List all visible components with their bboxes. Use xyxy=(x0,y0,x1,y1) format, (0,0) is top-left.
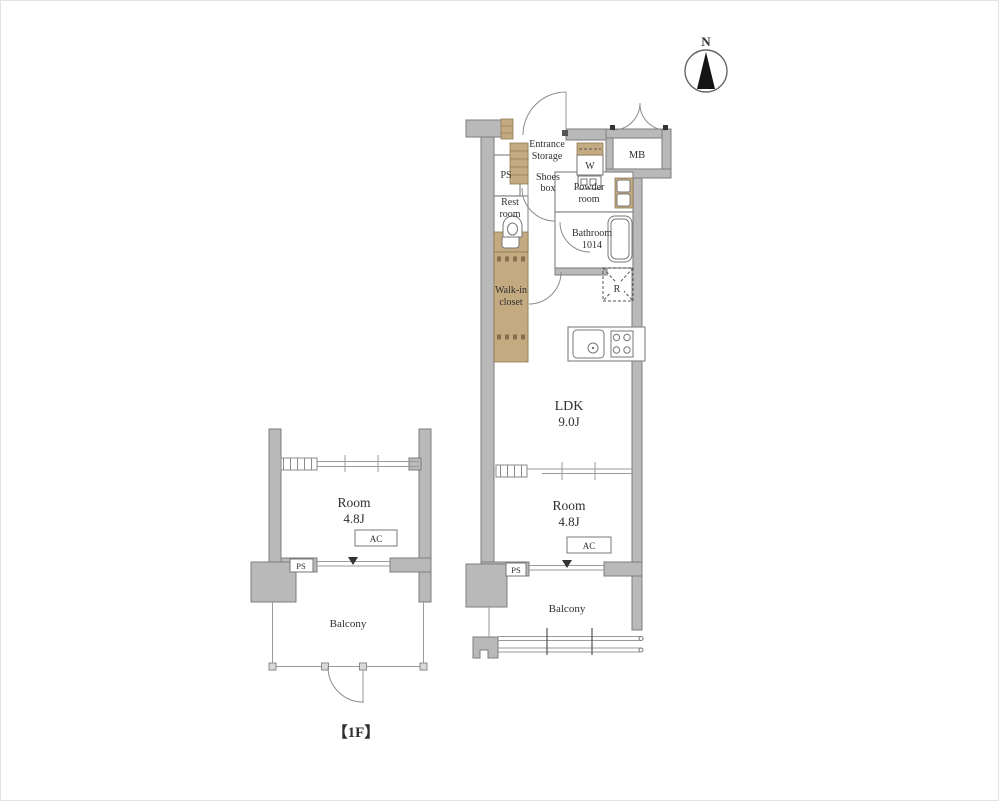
meter-box-label: MB xyxy=(629,150,645,161)
wall-balcony-notch-block xyxy=(473,637,498,658)
bathroom-label-1: Bathroom xyxy=(572,228,612,239)
compass-north-indicator: N xyxy=(685,34,727,92)
balcony-gate-arc xyxy=(328,667,363,702)
powder-room-label-2: room xyxy=(578,194,599,205)
wall-balcony-pillar xyxy=(251,562,296,602)
bathroom-label-2: 1014 xyxy=(582,240,602,251)
fence-post xyxy=(269,663,276,670)
wall-bottom-right-part xyxy=(390,558,431,572)
floorplan-drawing: N xyxy=(0,0,999,801)
wall-bottom-right-part xyxy=(604,562,642,576)
fence-post xyxy=(322,663,329,670)
hand-basin-icon xyxy=(502,236,519,248)
wall-window-end-block xyxy=(409,458,421,470)
left-top-window-hatch xyxy=(281,458,317,470)
ac-label-left: AC xyxy=(370,534,383,544)
entrance-door-hinge xyxy=(562,130,568,136)
mb-door-left-arc xyxy=(613,103,640,130)
shoes-box-label-2: box xyxy=(541,183,556,194)
ldk-name-label: LDK xyxy=(555,399,584,414)
kitchen-sink-icon xyxy=(573,330,604,358)
wall-left-post xyxy=(269,429,281,575)
window-marker-right xyxy=(562,560,572,568)
refrigerator-space: R xyxy=(603,268,633,301)
room-left-size-label: 4.8J xyxy=(343,511,364,526)
vanity-basin-icon xyxy=(617,180,630,192)
ldk-size-label: 9.0J xyxy=(558,414,579,429)
interior-window-hatch xyxy=(496,465,527,477)
shoes-box-label-1: Shoes xyxy=(536,172,560,183)
rest-room-label-1: Rest xyxy=(501,197,519,208)
walkin-door-arc xyxy=(529,272,561,304)
floorplan-canvas: N xyxy=(0,0,999,801)
mb-door-right-arc xyxy=(640,104,666,130)
room-left-name-label: Room xyxy=(337,495,371,510)
walkin-label-2: closet xyxy=(499,297,523,308)
wall-left xyxy=(481,137,494,563)
entrance-storage-label-2: Storage xyxy=(532,151,563,162)
entrance-cabinet-upper xyxy=(501,119,513,139)
powder-room-label-1: Powder xyxy=(574,182,605,193)
ps-label-left: PS xyxy=(296,561,306,571)
fence-post xyxy=(360,663,367,670)
fence-post xyxy=(420,663,427,670)
ps-label-right-lower: PS xyxy=(511,565,521,575)
entrance-storage-label-1: Entrance xyxy=(529,139,565,150)
room-right-size-label: 4.8J xyxy=(558,514,579,529)
balcony-left-label: Balcony xyxy=(330,618,367,630)
equipment-boxes: AC AC PS PS xyxy=(290,530,611,576)
balcony-right-label: Balcony xyxy=(549,603,586,615)
wall-right-post xyxy=(419,429,431,575)
room-right-name-label: Room xyxy=(552,498,586,513)
floor-label: 【1F】 xyxy=(333,723,380,741)
refrigerator-label: R xyxy=(614,284,621,295)
compass-north-label: N xyxy=(701,34,711,49)
rest-room-label-2: room xyxy=(499,209,520,220)
entrance-door-arc xyxy=(523,92,566,135)
wall-balcony-pillar xyxy=(466,564,507,607)
compass-needle-icon xyxy=(697,52,715,89)
walkin-label-1: Walk-in xyxy=(495,285,527,296)
wall-right-pillar-stub xyxy=(419,572,431,602)
vanity-cabinet-icon xyxy=(617,194,630,206)
ps-upper-label: PS xyxy=(500,170,511,181)
entrance-storage-cabinet xyxy=(510,143,528,184)
washer-label: W xyxy=(585,161,595,172)
left-unit-walls xyxy=(251,429,431,602)
ac-label-right: AC xyxy=(583,541,596,551)
